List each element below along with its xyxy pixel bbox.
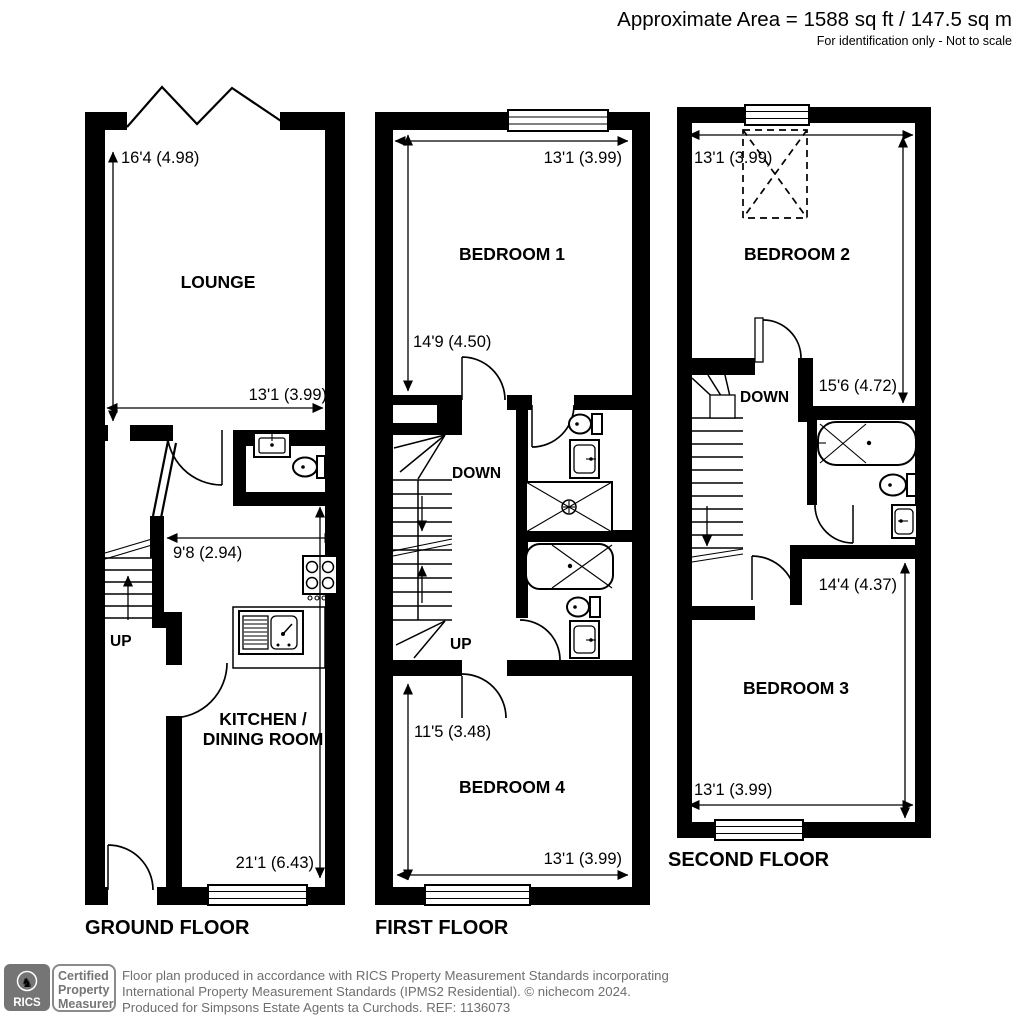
first-floor-title: FIRST FLOOR: [375, 917, 509, 939]
toilet-icon: [880, 474, 916, 496]
bedroom4-label: BEDROOM 4: [459, 777, 565, 797]
dim-kitchen-height: 21'1 (6.43): [236, 854, 314, 872]
rics-wordmark: RICS: [13, 997, 41, 1009]
lounge-label: LOUNGE: [181, 272, 256, 292]
door-arc: [167, 430, 222, 485]
toilet-icon: [569, 414, 602, 434]
sink-icon: [570, 440, 599, 478]
sink-icon: [892, 505, 917, 538]
dim-bedroom3-height: 14'4 (4.37): [819, 576, 897, 594]
kitchen-dining-label-line2: DINING ROOM: [203, 729, 324, 749]
window: [425, 885, 530, 905]
footer-line1: Floor plan produced in accordance with R…: [122, 968, 669, 983]
dim-bedroom4-width: 13'1 (3.99): [544, 850, 622, 868]
shower-icon: [526, 482, 612, 532]
second-floor-title: SECOND FLOOR: [668, 849, 830, 871]
up-label: UP: [110, 633, 132, 650]
toilet-icon: [293, 456, 325, 478]
stairs-icon: [393, 435, 452, 658]
dim-lounge-width: 13'1 (3.99): [249, 386, 327, 404]
down-label: DOWN: [740, 389, 789, 406]
door-arc: [462, 357, 505, 400]
scale-disclaimer-text: For identification only - Not to scale: [817, 34, 1012, 48]
badge-line3: Measurer: [58, 997, 114, 1011]
window: [715, 820, 803, 840]
sink-icon: [254, 433, 290, 457]
badge-line2: Property: [58, 983, 109, 997]
stairs-icon: [105, 539, 152, 620]
first-floor-plan: 13'1 (3.99) 14'9 (4.50) 11'5 (3.48) 13'1…: [375, 110, 650, 939]
down-label: DOWN: [452, 465, 501, 482]
dim-bedroom3-width: 13'1 (3.99): [694, 781, 772, 799]
dim-bedroom1-width: 13'1 (3.99): [544, 149, 622, 167]
skylight-dashed: [743, 130, 807, 218]
kitchen-dining-label-line1: KITCHEN /: [219, 709, 307, 729]
front-door-arc: [108, 845, 153, 890]
door-arc: [755, 318, 801, 362]
bath-icon: [526, 544, 613, 589]
bay-opening-zigzag: [127, 87, 281, 127]
up-label: UP: [450, 636, 472, 653]
approximate-area-text: Approximate Area = 1588 sq ft / 147.5 sq…: [617, 8, 1012, 31]
bedroom1-label: BEDROOM 1: [459, 244, 565, 264]
certified-property-measurer-badge: Certified Property Measurer: [53, 965, 115, 1011]
dim-bedroom4-height: 11'5 (3.48): [414, 723, 491, 741]
bedroom3-label: BEDROOM 3: [743, 678, 849, 698]
window: [508, 110, 608, 131]
window: [745, 105, 809, 125]
bath-icon: [818, 422, 916, 465]
sink-icon: [570, 621, 599, 658]
rics-logo: ♞ RICS: [4, 964, 50, 1011]
bedroom2-label: BEDROOM 2: [744, 244, 850, 264]
footer-line2: International Property Measurement Stand…: [122, 984, 631, 999]
floorplan-page: Approximate Area = 1588 sq ft / 147.5 sq…: [0, 0, 1024, 1018]
footer-disclaimer: Floor plan produced in accordance with R…: [122, 968, 669, 1015]
window: [208, 885, 307, 905]
badge-line1: Certified: [58, 969, 109, 983]
dim-bedroom1-height: 14'9 (4.50): [413, 333, 491, 351]
door-arc: [462, 674, 506, 718]
kitchen-sink-icon: [239, 611, 303, 654]
lion-crest-icon: ♞: [21, 975, 33, 990]
stairs-icon: [692, 375, 743, 562]
door-arc: [532, 405, 574, 447]
dim-bedroom2-height: 15'6 (4.72): [819, 377, 897, 395]
door-arc: [752, 556, 796, 600]
ground-floor-title: GROUND FLOOR: [85, 917, 250, 939]
toilet-icon: [567, 597, 600, 617]
footer-line3: Produced for Simpsons Estate Agents ta C…: [122, 1000, 510, 1015]
door-arc: [520, 620, 560, 660]
door-arc: [815, 505, 853, 543]
wall-opening-symbol: [153, 441, 168, 516]
floorplan-canvas: Approximate Area = 1588 sq ft / 147.5 sq…: [0, 0, 1024, 1018]
dim-bedroom2-width: 13'1 (3.99): [694, 149, 772, 167]
second-floor-plan: 13'1 (3.99) 15'6 (4.72) 14'4 (4.37) 13'1…: [668, 105, 931, 871]
dim-kitchen-width: 9'8 (2.94): [173, 544, 242, 562]
ground-floor-plan: 16'4 (4.98) 13'1 (3.99) 9'8 (2.94) 21'1 …: [85, 87, 345, 939]
dim-lounge-height: 16'4 (4.98): [121, 149, 199, 167]
